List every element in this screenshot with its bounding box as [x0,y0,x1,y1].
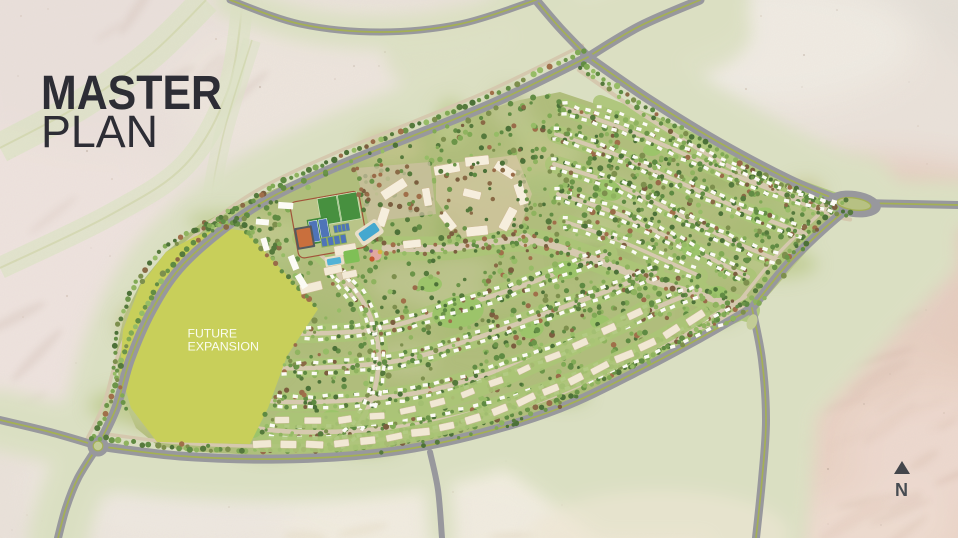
svg-text:EXPANSION: EXPANSION [188,340,260,354]
svg-text:FUTURE: FUTURE [188,327,238,341]
svg-text:PLAN: PLAN [41,106,158,157]
svg-text:N: N [895,480,908,500]
